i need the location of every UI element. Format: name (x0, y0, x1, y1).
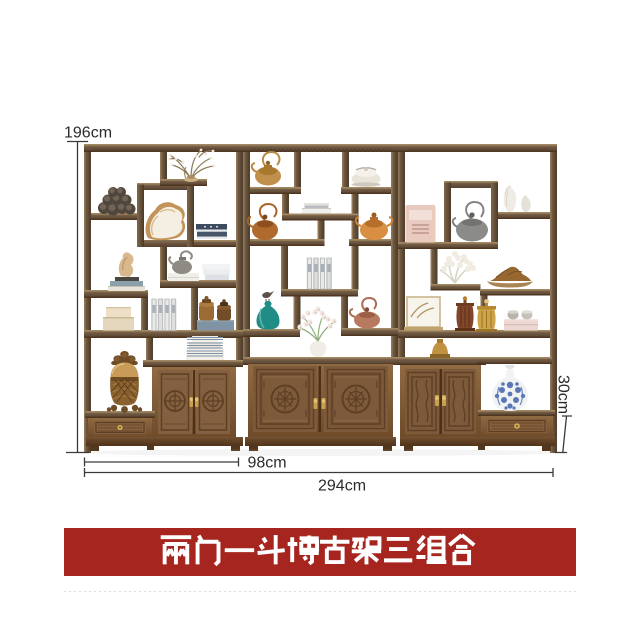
svg-text:98cm: 98cm (248, 455, 287, 472)
svg-text:294cm: 294cm (318, 478, 366, 495)
svg-text:196cm: 196cm (64, 125, 112, 142)
svg-text:30cm: 30cm (555, 375, 572, 414)
